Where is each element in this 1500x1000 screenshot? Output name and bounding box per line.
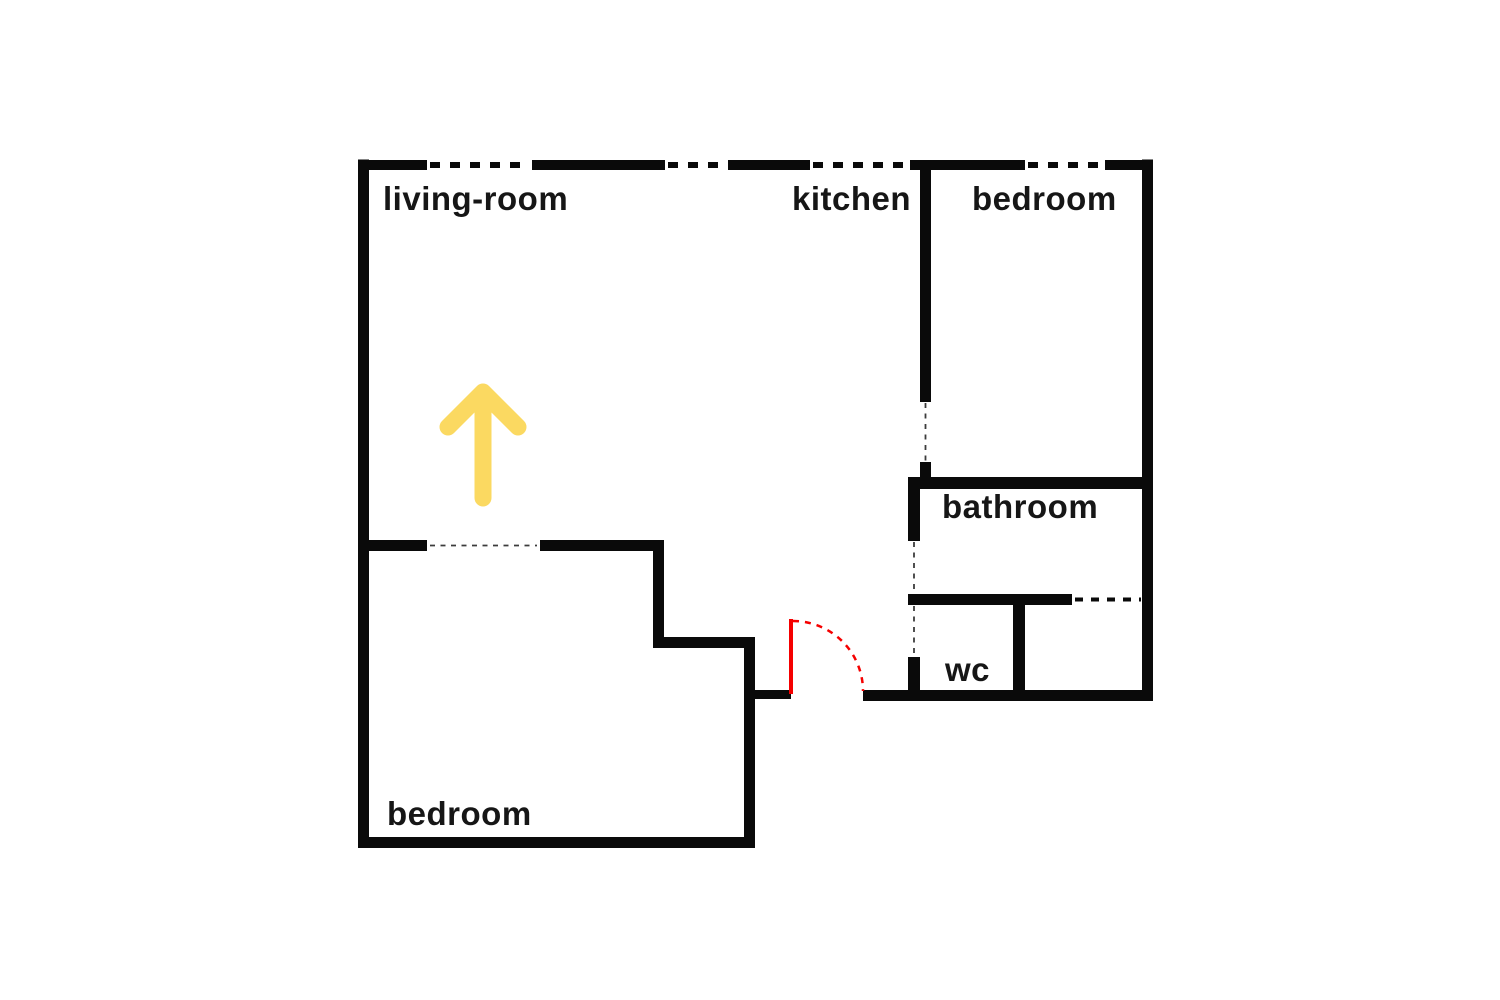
up-arrow-icon	[448, 392, 518, 498]
floor-plan-canvas: living-room kitchen bedroom bathroom wc …	[0, 0, 1500, 1000]
door-swing-arc	[793, 621, 863, 691]
label-bedroom-top: bedroom	[972, 180, 1117, 217]
floor-plan: living-room kitchen bedroom bathroom wc …	[0, 0, 1500, 1000]
label-wc: wc	[944, 651, 990, 688]
label-living-room: living-room	[383, 180, 568, 217]
label-kitchen: kitchen	[792, 180, 911, 217]
label-bathroom: bathroom	[942, 488, 1098, 525]
label-bedroom-bottom: bedroom	[387, 795, 532, 832]
entrance-door	[791, 619, 863, 694]
